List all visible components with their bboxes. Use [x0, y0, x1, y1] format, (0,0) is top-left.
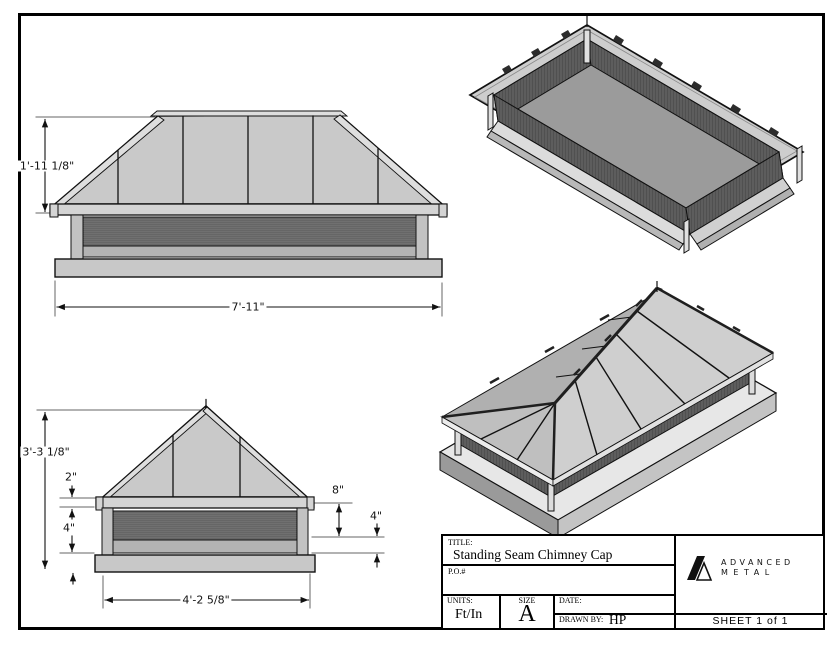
corner-post — [548, 483, 554, 511]
date-label: DATE: — [559, 597, 582, 605]
base-flange — [95, 555, 315, 572]
corner-post — [102, 508, 113, 555]
tb-divider — [443, 564, 674, 566]
mesh-screen — [113, 511, 297, 540]
logo-text-line1: ADVANCED — [721, 558, 794, 568]
drawn-by-label: DRAWN BY: — [559, 616, 603, 624]
title-block: TITLE: Standing Seam Chimney Cap P.O.# U… — [441, 534, 825, 630]
front-elevation-view — [36, 111, 447, 316]
drawing-sheet: 1'-11 1/8" 7'-11" 3'-3 1/8" 2" 4" 8" 4" … — [0, 0, 840, 649]
mesh-screen — [83, 217, 416, 246]
units-value: Ft/In — [455, 608, 482, 622]
dim-side-roof-drop: 8" — [330, 485, 346, 496]
ridge-cap — [151, 111, 347, 116]
po-label: P.O.# — [448, 568, 465, 576]
dim-side-skirt: 4" — [61, 523, 77, 534]
title-label: TITLE: — [448, 539, 472, 547]
corner-post — [488, 93, 493, 130]
dim-side-width: 4'-2 5/8" — [180, 595, 231, 606]
isometric-top-view — [440, 281, 776, 538]
dim-side-height: 3'-3 1/8" — [20, 447, 71, 458]
corner-post — [416, 215, 428, 262]
base-flange — [55, 259, 442, 277]
side-elevation-view — [37, 400, 384, 609]
units-label: UNITS: — [447, 597, 473, 605]
company-logo: ADVANCED METAL — [685, 554, 794, 582]
dim-side-base: 4" — [368, 511, 384, 522]
isometric-underside-view — [470, 16, 803, 253]
sheet-number: SHEET 1 of 1 — [674, 615, 827, 627]
drawn-by-value: HP — [609, 613, 626, 627]
corner-post — [71, 215, 83, 262]
advanced-metal-logo-icon — [685, 554, 715, 582]
drawing-title: Standing Seam Chimney Cap — [453, 548, 612, 562]
corner-post — [684, 219, 689, 253]
dim-front-height: 1'-11 1/8" — [18, 161, 76, 172]
dim-front-width: 7'-11" — [229, 302, 266, 313]
corner-post — [584, 30, 590, 63]
logo-text-line2: METAL — [721, 568, 794, 578]
tb-divider — [553, 594, 555, 628]
corner-post — [297, 508, 308, 555]
corner-post — [797, 146, 802, 183]
size-value: A — [501, 602, 553, 626]
dim-side-fascia: 2" — [63, 472, 79, 483]
